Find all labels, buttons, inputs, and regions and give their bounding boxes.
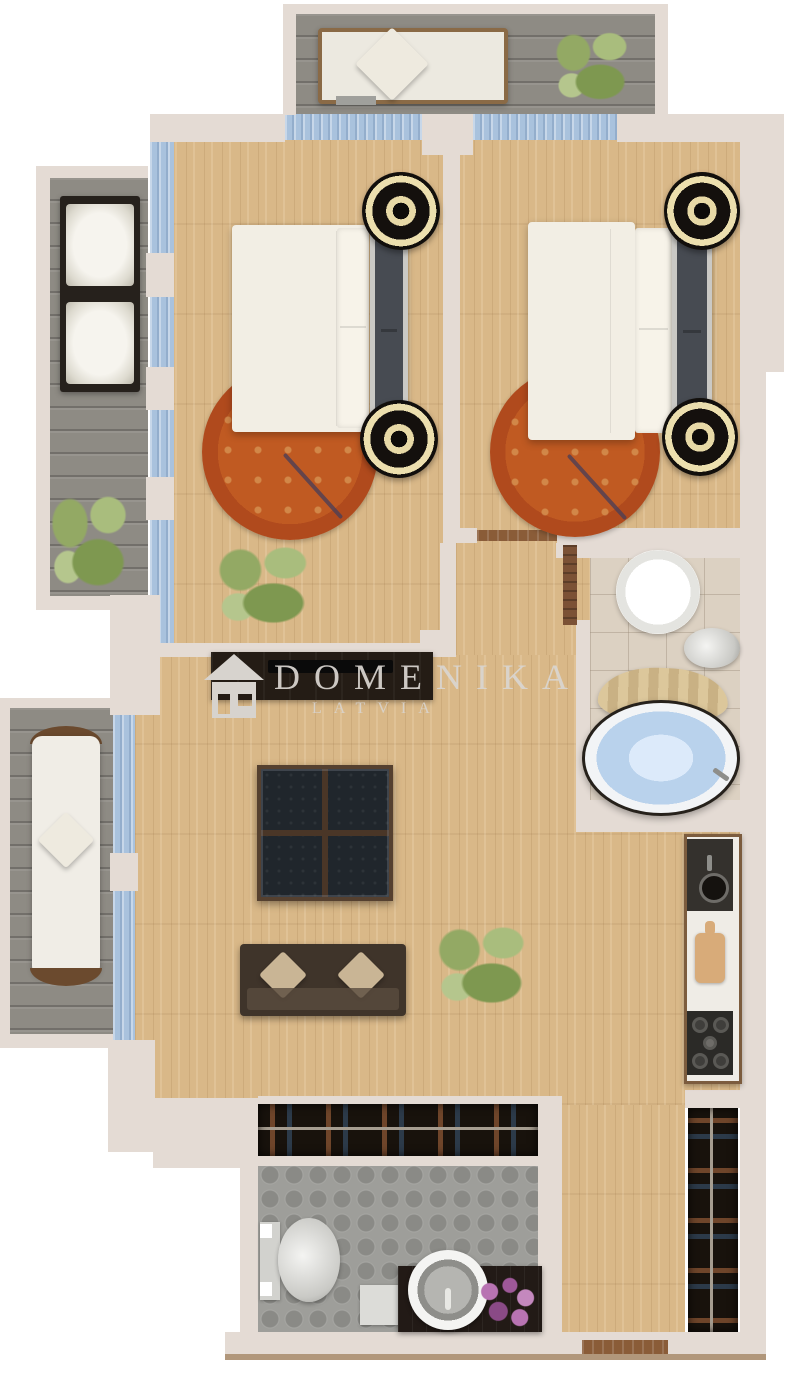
wall-north-right: [617, 114, 740, 142]
wall-sw-step-1: [108, 1040, 155, 1152]
wall-balcony2-left: [0, 698, 10, 1046]
sink-bowl: [699, 873, 729, 903]
wall-bedroom-divider: [443, 114, 460, 543]
cooktop-dial: [703, 1036, 717, 1050]
lounge-pillow: [38, 812, 95, 869]
coffee-table-icon: [257, 765, 393, 901]
wall-wardrobe-v-top: [685, 1090, 766, 1108]
wall-bath-lower-left: [240, 1158, 258, 1340]
bedroom-right-nightstand-top: [664, 172, 740, 250]
bench-step: [336, 96, 376, 105]
burner-icon: [713, 1053, 729, 1069]
wall-balcony-top-right: [655, 4, 668, 115]
watermark: DOMENIKA LATVIA: [200, 650, 620, 730]
balcony-bench: [318, 28, 508, 104]
closet-rail-horizontal: [258, 1104, 538, 1156]
closet-rail-vertical: [688, 1108, 738, 1332]
lounge-chair-icon: [32, 736, 100, 976]
toilet-button: [260, 1282, 272, 1296]
watermark-brand: DOMENIKA: [274, 656, 582, 698]
cutting-board-icon: [695, 933, 725, 983]
kitchen-counter: [684, 834, 742, 1084]
house-icon: [202, 652, 266, 722]
bedroom-right-bed-pillows: [635, 228, 672, 433]
window-pier-3: [146, 477, 174, 520]
rug-ornament: [283, 453, 344, 520]
wash-basin-icon: [616, 550, 700, 634]
toilet-upper-icon: [684, 628, 740, 668]
bedroom-left-bed-pillows: [337, 228, 369, 428]
wall-balcony2-bottom: [0, 1034, 113, 1048]
coffee-table-top: [261, 769, 389, 897]
sofa-cushion-2: [66, 302, 134, 384]
window-top-right: [473, 114, 617, 140]
sink2-faucet: [445, 1288, 451, 1310]
bedroom-left-nightstand-top: [362, 172, 440, 250]
balcony-top-plant: [545, 22, 640, 110]
wall-north-left: [150, 114, 285, 142]
burner-icon: [713, 1017, 729, 1033]
bedroom-left-plant: [205, 535, 323, 635]
sofa-pillow-right: [337, 951, 385, 999]
kitchen-sink-icon: [687, 839, 733, 911]
toilet-button: [260, 1224, 272, 1238]
cooktop-icon: [687, 1011, 733, 1075]
window-top-left: [285, 114, 422, 140]
sofa-cushion-1: [66, 204, 134, 286]
sofa-pillow-left: [259, 951, 307, 999]
wall-wardrobe-top: [258, 1096, 562, 1104]
wall-east-lower: [740, 372, 766, 1360]
bedroom-right-nightstand-bottom: [662, 398, 738, 476]
wall-bath-lower-mid: [240, 1156, 540, 1166]
balcony-left-plant: [40, 482, 140, 600]
wall-balcony2-top: [0, 698, 113, 708]
wall-south-edge: [225, 1354, 766, 1360]
wall-corridor-top-a: [443, 528, 477, 543]
wall-balcony-top-top: [283, 4, 668, 14]
vanity-cabinet: [360, 1285, 402, 1325]
rug-ornament: [567, 453, 628, 520]
wall-balcony1-top: [36, 166, 148, 178]
vanity-sink-icon: [408, 1250, 488, 1330]
watermark-country: LATVIA: [312, 700, 442, 718]
living-room-plant: [425, 915, 540, 1015]
toilet-lower-icon: [278, 1218, 340, 1302]
burner-icon: [692, 1053, 708, 1069]
living-sofa-icon: [240, 944, 406, 1016]
door-bathroom-upper: [563, 545, 577, 625]
wall-balcony-top-left: [283, 4, 296, 115]
window-pier-1: [146, 253, 174, 297]
sink-faucet: [707, 855, 712, 871]
bedroom-right-bed-duvet: [528, 222, 635, 440]
window-pier-2: [146, 367, 174, 410]
window-pier-4: [110, 853, 138, 891]
burner-icon: [692, 1017, 708, 1033]
floor-plan: DOMENIKA LATVIA: [0, 0, 800, 1374]
wall-corridor-vert: [440, 543, 456, 633]
wall-left-notch: [110, 595, 160, 715]
flowers-icon: [478, 1276, 536, 1328]
balcony-sofa: [60, 196, 140, 392]
bench-pillow: [355, 27, 429, 101]
cutting-board-handle: [705, 921, 715, 935]
bedroom-left-nightstand-bottom: [360, 400, 438, 478]
hallway-floor: [543, 1105, 685, 1345]
entry-door-threshold: [582, 1340, 668, 1354]
wall-east-upper: [740, 114, 784, 372]
